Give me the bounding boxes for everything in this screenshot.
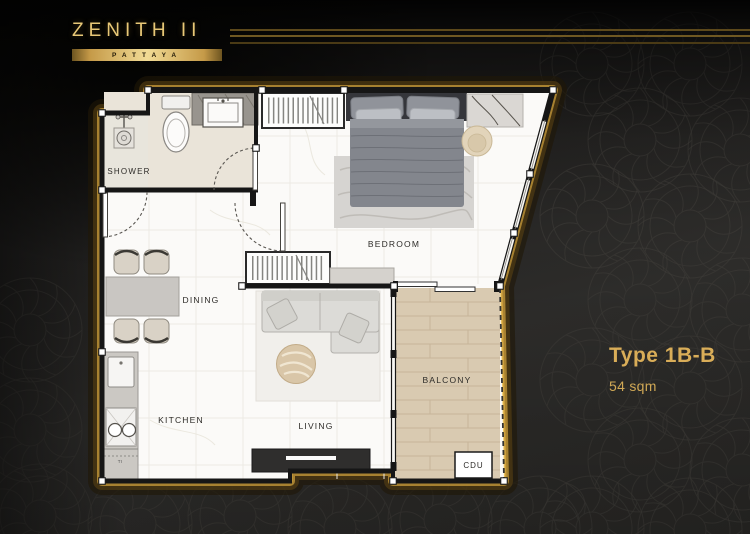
stove-symbol [106, 408, 136, 446]
shower-symbol [114, 114, 134, 148]
shower-floor [104, 115, 148, 189]
door-leaf [103, 193, 108, 237]
blanket [350, 119, 464, 207]
cdu-unit: CDU [455, 452, 492, 478]
dining-chair [144, 319, 169, 343]
toilet-symbol [162, 96, 190, 109]
bed [346, 89, 467, 207]
cdu-label: CDU [463, 461, 483, 470]
coffee-table [277, 345, 316, 384]
page: ZENITH II PATTAYA Type 1B-B 54 sqm [0, 0, 750, 534]
tv-screen [286, 456, 336, 460]
shower-label: SHOWER [107, 167, 150, 176]
dining-chair [114, 250, 139, 274]
dining-label: DINING [183, 295, 220, 305]
floorplan: TI CDU [0, 0, 750, 534]
door-leaf [253, 148, 258, 190]
dining-table [106, 277, 179, 316]
dining-chair [144, 250, 169, 274]
appliance-mark: TI [118, 459, 123, 464]
kitchen-label: KITCHEN [158, 415, 204, 425]
wardrobe-entry [262, 93, 344, 128]
kitchen-counter: TI [104, 352, 138, 481]
balcony-label: BALCONY [422, 375, 471, 385]
bedroom-label: BEDROOM [368, 239, 420, 249]
door-leaf [281, 203, 286, 251]
living-label: LIVING [298, 421, 333, 431]
dining-chair [114, 319, 139, 343]
side-counter [330, 268, 394, 285]
